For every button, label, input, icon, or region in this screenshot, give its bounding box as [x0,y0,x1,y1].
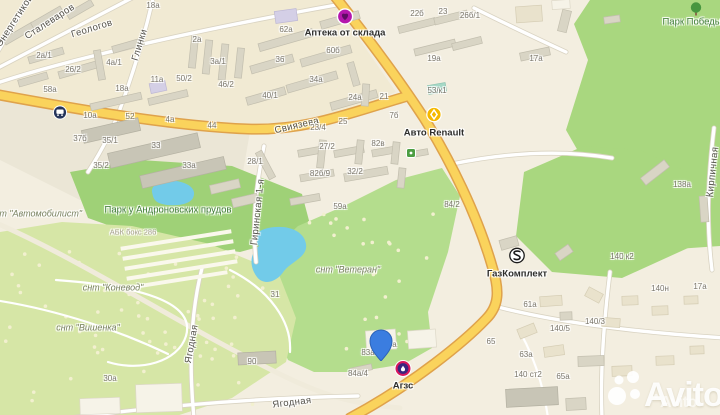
house-number-label: 44 [208,122,217,130]
house-number-label: 52 [126,113,135,121]
house-number-label: 36 [276,56,285,64]
house-number-label: 19а [427,55,440,63]
house-number-label: 2а/1 [36,52,52,60]
location-pin[interactable] [369,329,393,366]
house-number-label: 30а [103,375,116,383]
park-area-label: Парк у Андроновских прудов [105,205,232,215]
house-number-label: 23 [439,8,448,16]
house-number-label: 11а [151,76,164,84]
house-number-label: 84/2 [444,201,460,209]
house-number-label: 140 к2 [610,253,634,261]
house-number-label: 61а [523,301,536,309]
poi-label: Агзс [393,381,414,391]
house-number-label: 26/2 [65,66,81,74]
house-number-label: 60б [326,47,339,55]
house-number-label: 34а [309,76,322,84]
poi-label: Авто Renault [404,128,464,138]
house-number-label: 32/2 [347,168,363,176]
house-number-label: 33а [182,162,195,170]
bus-stop-icon[interactable] [53,105,68,125]
house-number-label: 27/2 [319,143,335,151]
house-number-label: 18а [146,2,159,10]
house-number-label: 28/1 [247,158,263,166]
snt-area-label: снт "Ветеран" [316,266,380,275]
house-number-label: 4а/1 [106,59,122,67]
house-number-label: 26б/1 [460,12,480,20]
house-number-label: 3а/1 [210,58,226,66]
house-number-label: 65 [487,338,496,346]
map-note-label: АБК бокс 286 [110,228,157,236]
house-number-label: 140/5 [550,325,570,333]
house-number-label: 82в [371,140,384,148]
house-number-label: 4а [166,116,175,124]
house-number-label: 35/2 [93,162,109,170]
snt-area-label: снт "Коневод" [83,284,144,293]
house-number-label: 59а [333,203,346,211]
house-number-label: 23/4 [310,124,326,132]
house-number-label: 82б/9 [310,170,330,178]
house-number-label: 62а [279,26,292,34]
house-number-label: 37б [73,135,86,143]
snt-area-label: снт "Автомобилист" [0,210,82,219]
renault-icon[interactable] [426,106,443,128]
house-number-label: 18а [115,85,128,93]
house-number-label: 2а [193,36,202,44]
house-number-label: 25 [339,118,348,126]
house-number-label: 140 ст2 [514,371,542,379]
house-number-label: 17а [693,283,706,291]
house-number-label: 58а [43,86,56,94]
house-number-label: 90 [248,358,257,366]
pharmacy-heart-icon[interactable] [336,8,354,31]
house-number-label: 140/3 [585,318,605,326]
house-number-label: 22б [410,10,423,18]
house-number-label: 138а [673,181,691,189]
house-number-label: 21 [380,93,389,101]
house-number-label: 50/2 [176,75,192,83]
leisure-icon[interactable] [406,145,416,163]
tree-icon[interactable] [689,1,703,22]
house-number-label: 33 [152,142,161,150]
house-number-label: 63а [519,351,532,359]
house-number-label: 40/1 [262,92,278,100]
house-number-label: 46/2 [218,81,234,89]
gas-station-icon[interactable] [394,360,412,383]
snt-area-label: снт "Вишенка" [56,324,120,333]
map-canvas[interactable]: ЭнергетиковСталеваровГеологовГлинкиСвияз… [0,0,720,415]
house-number-label: 7б [389,112,398,120]
house-number-label: 31 [271,291,280,299]
gazkomplekt-icon[interactable] [509,247,526,269]
house-number-label: 10а [83,112,96,120]
house-number-label: 140н [651,285,669,293]
poi-label: ГазКомплект [487,269,547,279]
house-number-label: 24а [348,94,361,102]
house-number-label: 65а [556,373,569,381]
house-number-label: 35/1 [102,137,118,145]
house-number-label: 84а/4 [348,370,368,378]
house-number-label: 53/к1 [427,87,446,95]
house-number-label: 17а [529,55,542,63]
